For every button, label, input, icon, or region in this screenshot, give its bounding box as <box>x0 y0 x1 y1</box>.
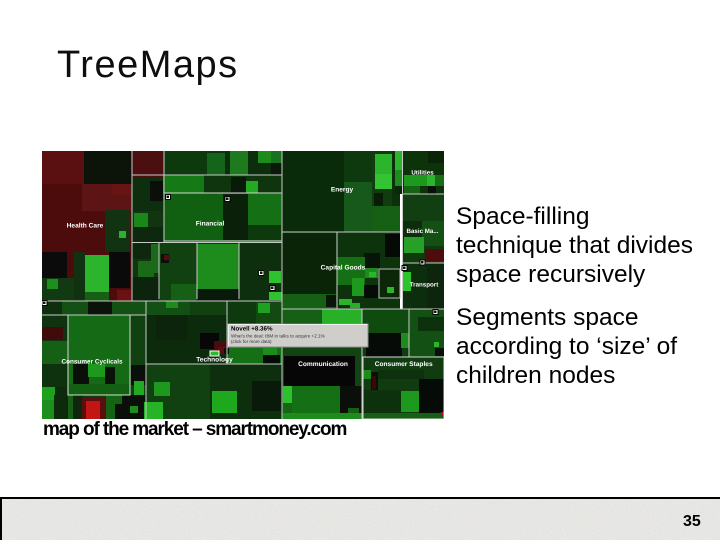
svg-text:Consumer Cyclicals: Consumer Cyclicals <box>61 359 123 366</box>
svg-text:Novell +8.36%: Novell +8.36% <box>231 326 273 333</box>
svg-text:Health Care: Health Care <box>67 223 104 230</box>
svg-text:Technology: Technology <box>196 357 233 364</box>
svg-text:Utilities: Utilities <box>411 170 434 177</box>
svg-text:Energy: Energy <box>331 187 354 194</box>
svg-text:Financial: Financial <box>196 221 225 228</box>
svg-text:(click for more data): (click for more data) <box>231 339 272 344</box>
svg-text:Capital Goods: Capital Goods <box>321 265 366 272</box>
svg-text:Transport: Transport <box>410 282 439 289</box>
svg-text:Consumer Staples: Consumer Staples <box>375 361 433 368</box>
svg-text:Communication: Communication <box>298 361 348 368</box>
svg-text:Basic Ma...: Basic Ma... <box>407 228 439 235</box>
svg-text:What's the deal: IBM in talks: What's the deal: IBM in talks to acquire… <box>231 333 325 338</box>
